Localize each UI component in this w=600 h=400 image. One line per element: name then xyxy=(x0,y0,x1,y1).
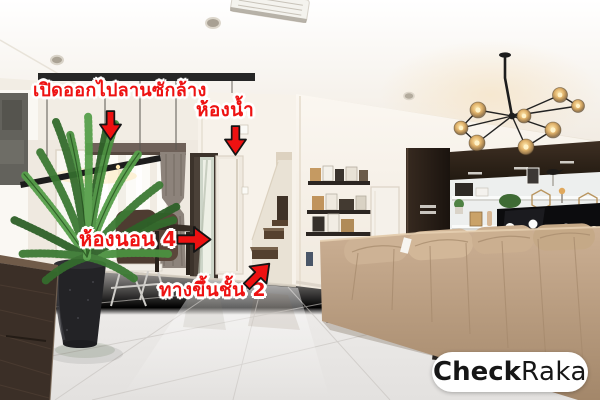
annotation-label-bedroom4: ห้องนอน 4 xyxy=(79,228,177,251)
annotation-label-bathroom: ห้องน้ำ xyxy=(196,100,254,122)
checkraka-watermark: CheckRaka xyxy=(432,352,588,392)
annotated-interior-photo: เปิดออกไปลานซักล้าง ห้องน้ำ ห้องนอน 4 ทา… xyxy=(0,0,600,400)
bedroom-door xyxy=(190,153,218,283)
wall-outlet xyxy=(306,252,313,266)
arrow-down-icon xyxy=(224,124,247,157)
watermark-brand-bold: Check xyxy=(433,359,521,385)
hallway xyxy=(190,92,300,295)
stair-riser-shadow xyxy=(277,196,288,223)
bird-figurine xyxy=(547,169,560,175)
interior-photo xyxy=(0,0,600,400)
arrow-right-icon xyxy=(176,225,212,254)
arrow-down-icon xyxy=(99,110,122,141)
watermark-brand-regular: Raka xyxy=(521,359,587,385)
annotation-label-laundry: เปิดออกไปลานซักล้าง xyxy=(33,81,207,102)
